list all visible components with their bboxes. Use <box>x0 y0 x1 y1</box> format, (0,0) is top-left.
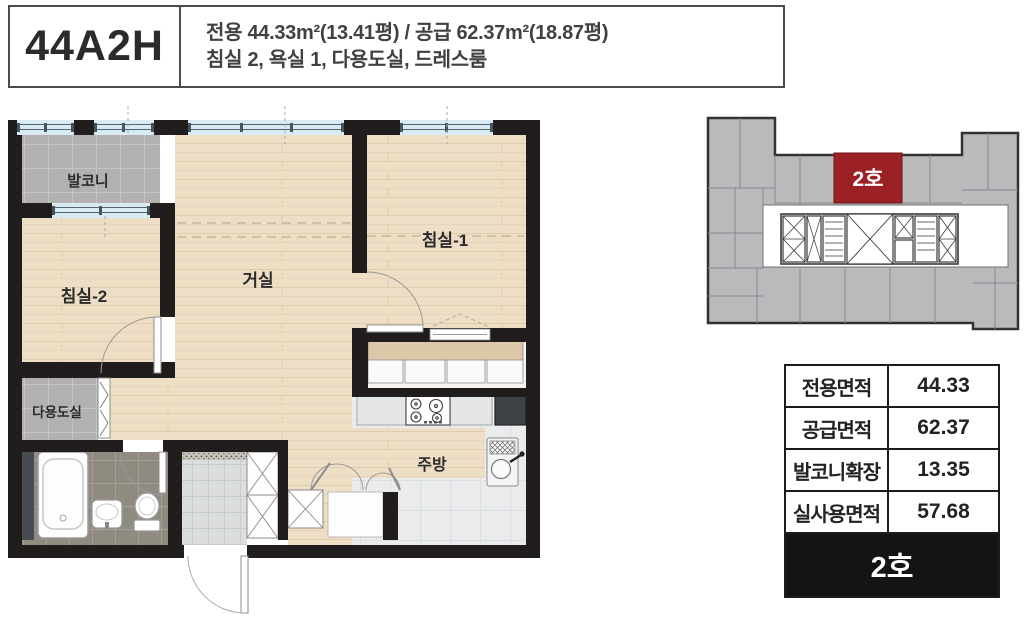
table-row: 전용면적 44.33 <box>786 366 998 408</box>
label-bedroom2: 침실-2 <box>61 286 107 306</box>
bedroom1-door-leaf <box>367 325 423 332</box>
label-living: 거실 <box>242 271 273 290</box>
building-keyplan: 2호 <box>708 118 1018 329</box>
label-kitchen: 주방 <box>417 456 447 474</box>
label-bedroom1: 침실-1 <box>422 230 468 250</box>
area-row-label: 실사용면적 <box>786 492 889 532</box>
area-row-value: 13.35 <box>889 450 998 490</box>
label-utility: 다용도실 <box>32 405 82 420</box>
area-row-label: 전용면적 <box>786 366 889 406</box>
pantry-cabinet <box>328 492 383 537</box>
area-row-value: 62.37 <box>889 408 998 448</box>
table-row: 발코니확장 13.35 <box>786 450 998 492</box>
sink-bowl <box>492 460 511 479</box>
highlighted-unit-label: 2호 <box>853 168 884 191</box>
unit-number-footer: 2호 <box>786 534 998 596</box>
dish-rack <box>490 441 515 454</box>
area-row-label: 발코니확장 <box>786 450 889 490</box>
area-row-value: 57.68 <box>889 492 998 532</box>
window-balcony-right <box>94 120 154 135</box>
building-core <box>781 214 958 264</box>
floor-corridor <box>110 378 175 440</box>
area-row-label: 공급면적 <box>786 408 889 448</box>
floorplan-sheet: 44A2H 전용 44.33m²(13.41평) / 공급 62.37m²(18… <box>0 0 1024 617</box>
floor-balcony <box>22 135 160 203</box>
built-in-appliance <box>495 396 526 425</box>
area-row-value: 44.33 <box>889 366 998 406</box>
bedroom2-door-leaf <box>154 317 161 373</box>
entrance-door-leaf <box>241 556 248 613</box>
floor-entrance <box>182 452 247 545</box>
window-balcony-inner <box>52 203 150 218</box>
window-living <box>188 120 344 135</box>
unit-floorplan: 발코니 침실-2 거실 침실-1 다용도실 주방 <box>8 106 540 613</box>
bathroom-door-leaf <box>159 452 166 493</box>
dressroom-counter <box>368 340 523 360</box>
entrance-door-arc <box>188 556 245 613</box>
label-balcony: 발코니 <box>67 173 108 190</box>
stairs-1 <box>823 216 845 262</box>
stairs-2 <box>915 216 937 262</box>
table-row: 공급면적 62.37 <box>786 408 998 450</box>
table-row: 실사용면적 57.68 <box>786 492 998 534</box>
area-table: 전용면적 44.33 공급면적 62.37 발코니확장 13.35 실사용면적 … <box>784 364 1000 598</box>
bathroom-shaft <box>22 452 34 540</box>
window-balcony-left <box>17 120 74 135</box>
